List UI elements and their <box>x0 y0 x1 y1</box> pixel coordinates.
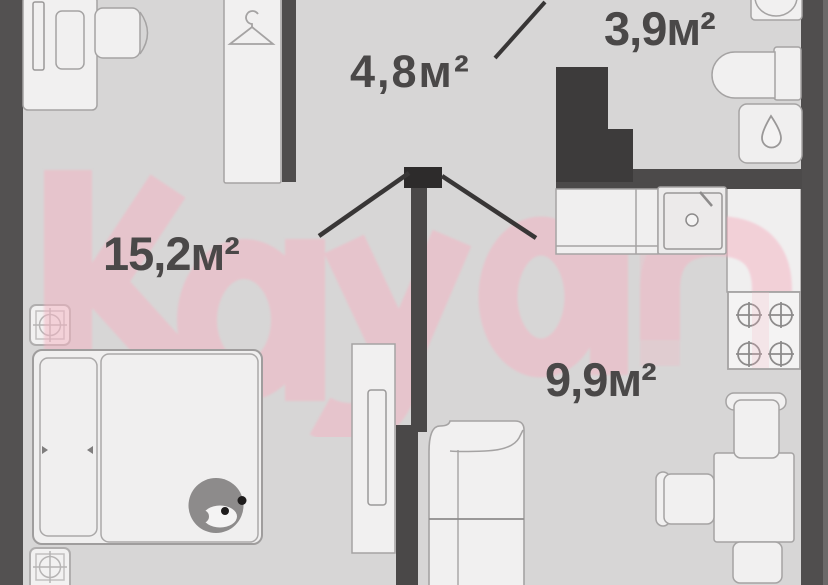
svg-text:4,8м²: 4,8м² <box>350 46 471 97</box>
svg-text:9,9м²: 9,9м² <box>545 353 656 406</box>
svg-text:15,2м²: 15,2м² <box>103 227 239 280</box>
svg-text:3,9м²: 3,9м² <box>604 2 715 55</box>
